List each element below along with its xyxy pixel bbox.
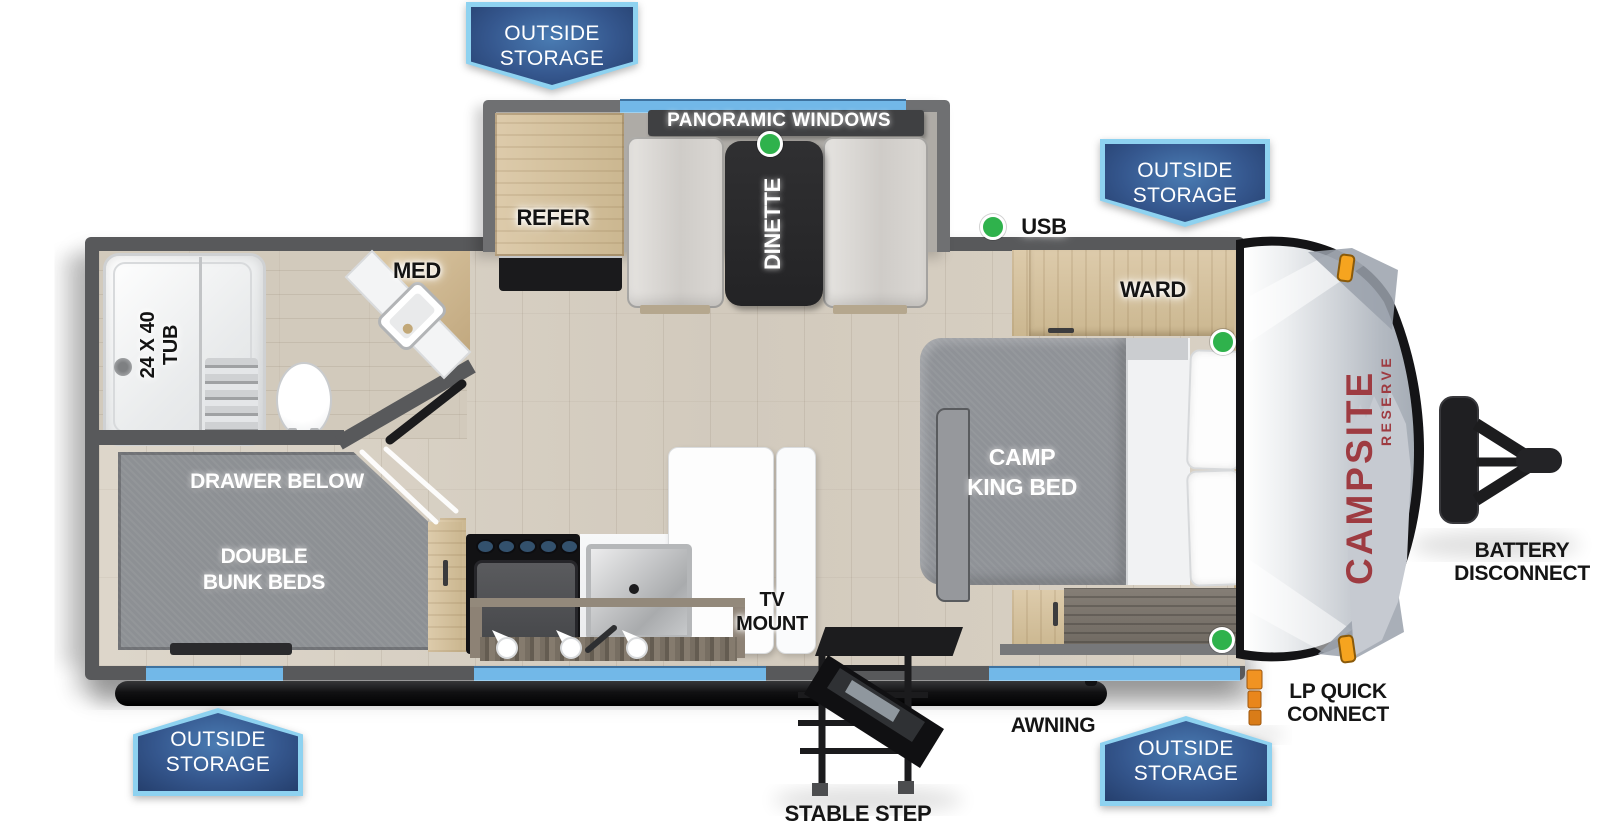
awning-roller <box>115 681 1107 706</box>
dresser-handle <box>1053 602 1058 626</box>
drawer-below-label: DRAWER BELOW <box>190 470 364 494</box>
wardrobe-side-panel <box>1012 250 1029 336</box>
stove-knob-3 <box>518 539 537 554</box>
kitchen-rail-shelf <box>480 637 737 661</box>
green-dot-bed-head-icon <box>1210 329 1236 355</box>
shower-shelf <box>205 358 258 438</box>
stable-step-callout: STABLE STEP <box>785 801 932 827</box>
outside-storage-badge-bottom-left: OUTSIDE STORAGE <box>133 708 303 796</box>
lp-quick-connect-callout: LP QUICK CONNECT <box>1287 680 1389 726</box>
refrigerator-lower-unit <box>499 256 622 291</box>
dinette-label: DINETTE <box>760 178 786 270</box>
bed-sheet-fold <box>1126 338 1188 360</box>
sink-drain <box>629 584 639 594</box>
badge-text-line2: STORAGE <box>1133 183 1237 208</box>
bed-pillow-bottom <box>1186 469 1244 587</box>
floorplan-canvas: CAMPSITE RESERVE PANORAMIC WINDOWS DINET… <box>0 0 1600 840</box>
outside-storage-badge-top-right: OUTSIDE STORAGE <box>1100 139 1270 227</box>
panoramic-windows-label: PANORAMIC WINDOWS <box>667 110 891 132</box>
window-strip-bedroom <box>989 666 1240 681</box>
green-dot-usb-icon <box>980 214 1006 240</box>
refer-label: REFER <box>516 205 589 231</box>
bunk-cabinet-handle <box>443 560 448 586</box>
badge-face: OUTSIDE STORAGE <box>138 713 298 791</box>
badge-text-line2: STORAGE <box>500 46 604 71</box>
lp-line1: LP QUICK <box>1287 680 1389 703</box>
tub-drain <box>114 358 132 376</box>
bunk-label-line1: DOUBLE <box>203 544 325 570</box>
badge-face: OUTSIDE STORAGE <box>1105 721 1267 801</box>
dinette-bench-left <box>627 137 724 308</box>
double-bunk-beds-label: DOUBLE BUNK BEDS <box>203 544 325 596</box>
bed-sheet-band <box>1126 338 1190 585</box>
battery-line2: DISCONNECT <box>1454 562 1590 585</box>
bed-base-rail <box>1000 644 1240 655</box>
bench-base-left <box>640 305 710 314</box>
stove-knob-1 <box>476 539 495 554</box>
bathroom-bottom-wall <box>99 430 344 445</box>
tv-label-line1: TV <box>736 588 808 612</box>
tv-mount-label: TV MOUNT <box>736 588 808 636</box>
ward-label: WARD <box>1120 277 1186 303</box>
badge-text-line2: STORAGE <box>166 752 270 777</box>
bunk-label-line2: BUNK BEDS <box>203 570 325 596</box>
stove-knob-2 <box>497 539 516 554</box>
wardrobe-handle <box>1048 328 1074 333</box>
badge-text-line2: STORAGE <box>1134 761 1238 786</box>
entry-mat <box>815 627 963 656</box>
window-strip-kitchen <box>474 666 766 681</box>
camp-king-line2: KING BED <box>967 472 1077 502</box>
tub-label-line1: 24 X 40 <box>137 312 160 379</box>
badge-face: OUTSIDE STORAGE <box>1105 144 1265 222</box>
kitchen-sink <box>586 544 692 640</box>
battery-line1: BATTERY <box>1454 539 1590 562</box>
badge-text-line1: OUTSIDE <box>1137 158 1232 183</box>
awning-callout: AWNING <box>1011 714 1096 738</box>
badge-face: OUTSIDE STORAGE <box>471 7 633 85</box>
bench-base-right <box>833 305 907 314</box>
stove-knob-5 <box>560 539 579 554</box>
window-strip-bunk <box>146 666 283 681</box>
dinette-bench-right <box>823 137 928 308</box>
tv-label-line2: MOUNT <box>736 612 808 636</box>
tv <box>936 408 970 602</box>
kitchen-rail-top <box>470 598 745 607</box>
refrigerator-cabinet <box>495 113 624 256</box>
camp-king-line1: CAMP <box>967 442 1077 472</box>
shower-glass-panel <box>199 257 202 436</box>
tub-label: 24 X 40 TUB <box>137 312 183 379</box>
badge-text-line1: OUTSIDE <box>1138 736 1233 761</box>
med-label: MED <box>393 258 441 284</box>
toilet <box>276 362 332 438</box>
battery-disconnect-callout: BATTERY DISCONNECT <box>1454 539 1590 585</box>
outside-storage-badge-top-left: OUTSIDE STORAGE <box>466 2 638 90</box>
usb-label: USB <box>1021 214 1067 240</box>
badge-text-line1: OUTSIDE <box>170 727 265 752</box>
stove-knob-4 <box>539 539 558 554</box>
camp-king-bed-label: CAMP KING BED <box>967 442 1077 502</box>
badge-text-line1: OUTSIDE <box>504 21 599 46</box>
green-dot-dinette-icon <box>757 131 783 157</box>
bed-pillow-top <box>1186 349 1244 471</box>
lp-line2: CONNECT <box>1287 703 1389 726</box>
bunk-step-pad <box>170 643 292 655</box>
green-dot-bed-foot-icon <box>1209 627 1235 653</box>
tub-label-line2: TUB <box>160 312 183 379</box>
bunk-side-cabinet <box>428 522 462 652</box>
outside-storage-badge-bottom-right: OUTSIDE STORAGE <box>1100 716 1272 806</box>
